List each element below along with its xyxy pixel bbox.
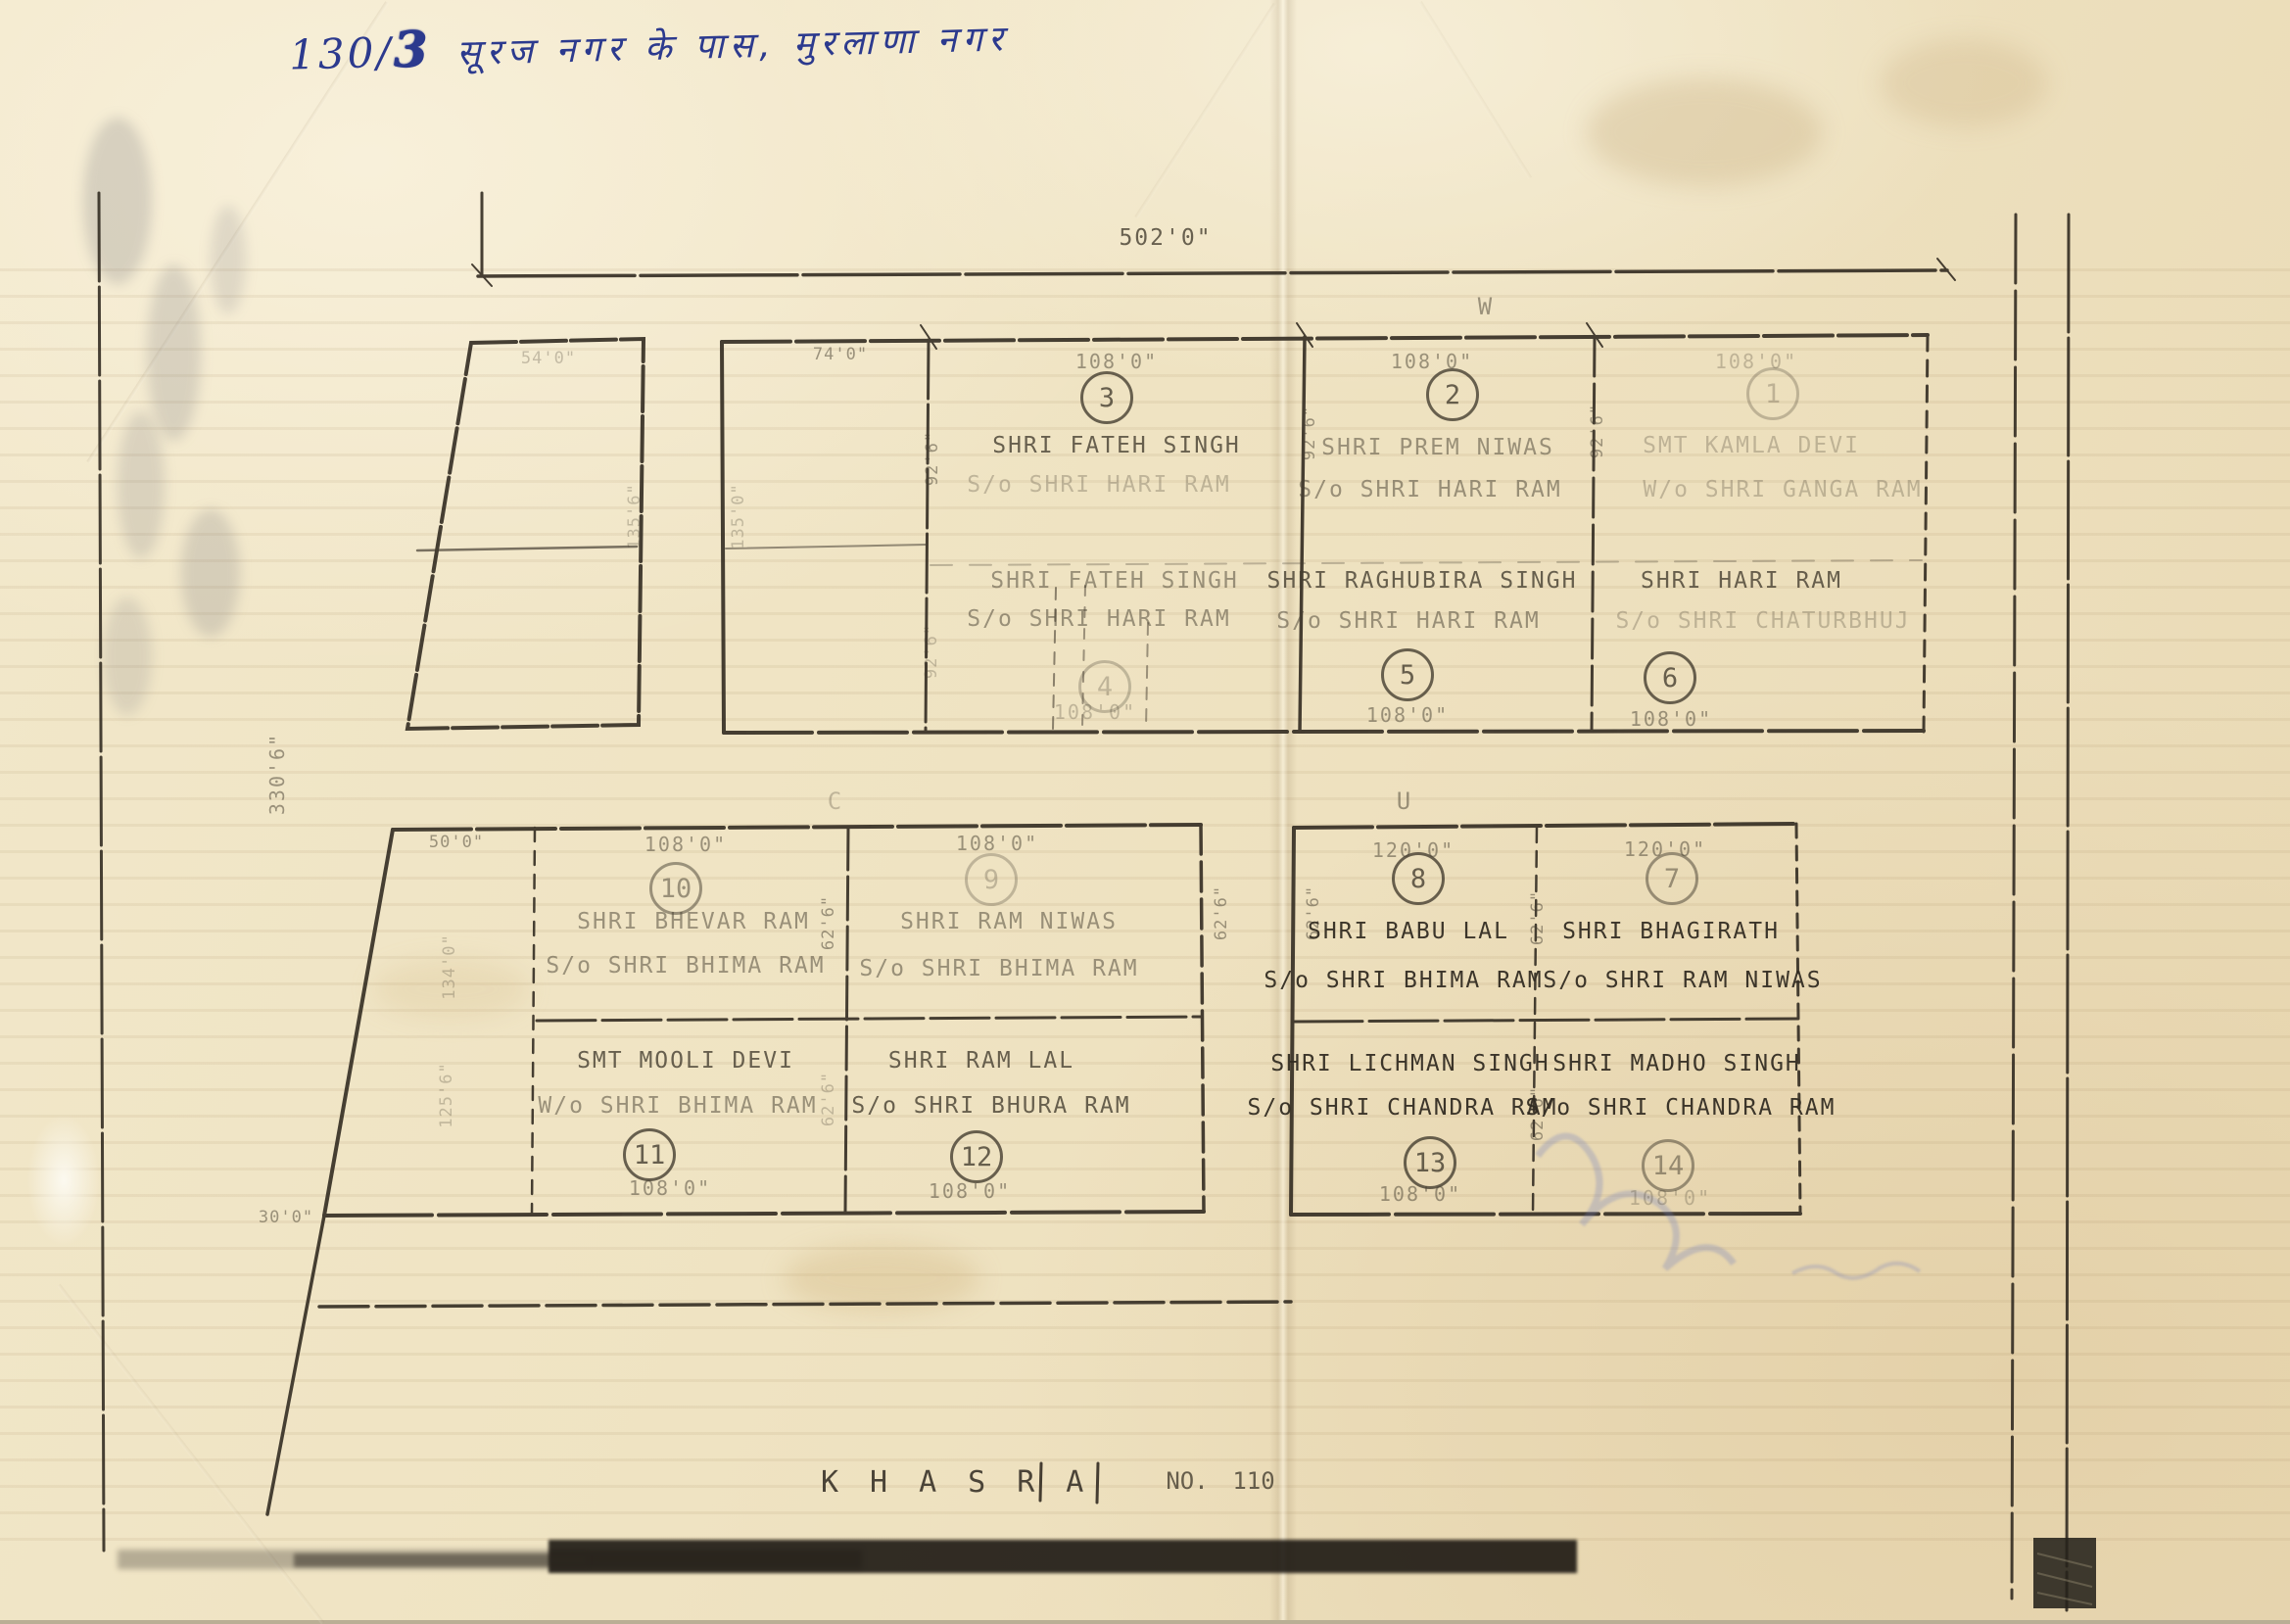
plot-12-dim: 108'0" [929,1179,1011,1203]
dim-depth-lower: 62'6" [1212,885,1231,940]
plot-10-name: SHRI BHEVAR RAM [577,909,810,934]
hatch-box [2033,1538,2096,1608]
plot-10-owner: S/o SHRI BHIMA RAM [546,953,825,979]
plot-9-name: SHRI RAM NIWAS [900,909,1118,934]
dim-left-height: 330'6" [265,733,289,815]
khasra-no-label: NO. [1166,1467,1208,1495]
plot-3-number: 3 [1080,371,1133,424]
plot-14-name: SHRI MADHO SINGH [1552,1051,1801,1076]
plot-3-dim: 108'0" [1075,350,1158,373]
plot-13-name: SHRI LICHMAN SINGH [1270,1051,1550,1076]
dim-depth-top: 92'6" [1588,404,1607,458]
khasra-number: 110 [1232,1467,1274,1495]
plot-9-number: 9 [965,853,1018,906]
dim-depth-lower: 62'6" [819,1072,838,1126]
plot-14-number: 14 [1642,1139,1694,1192]
dim-sliver-2: 125'6" [437,1062,456,1127]
dim-trapezoid-side: 135'6" [625,483,644,549]
plot-4-dim: 108'0" [1054,700,1136,724]
plot-9-owner: S/o SHRI BHIMA RAM [859,956,1138,981]
dim-depth-top: 92'6" [923,431,942,486]
plot-14-dim: 108'0" [1629,1186,1711,1210]
plot-1-owner: W/o SHRI GANGA RAM [1643,477,1922,502]
plot-5-dim: 108'0" [1366,703,1449,727]
plot-3-name: SHRI FATEH SINGH [992,433,1241,458]
plot-6-name: SHRI HARI RAM [1641,568,1842,594]
dim-lower-left-top: 50'0" [429,833,484,852]
plot-4-owner: S/o SHRI HARI RAM [967,606,1230,632]
plot-5-number: 5 [1381,648,1434,701]
plot-14-owner: S/o SHRI CHANDRA RAM [1526,1095,1837,1121]
dim-depth-lower: 62'6" [819,895,838,950]
plot-12-owner: S/o SHRI BHURA RAM [851,1093,1130,1119]
road-letter-c: C [828,788,841,815]
plot-10-dim: 108'0" [644,833,727,856]
plot-4-name: SHRI FATEH SINGH [990,568,1239,594]
road-letter-w: W [1478,293,1492,320]
plot-8-number: 8 [1392,852,1445,905]
dim-depth-top: 92'6" [922,624,941,679]
dim-col74-top: 74'0" [813,345,868,364]
dim-col74-side: 135'0" [729,483,748,549]
plot-9-dim: 108'0" [956,832,1038,855]
plot-11-dim: 108'0" [629,1176,711,1200]
plot-7-number: 7 [1646,852,1698,905]
ink-smudge-band [118,1540,1577,1573]
plot-11-owner: W/o SHRI BHIMA RAM [538,1093,817,1119]
plot-6-owner: S/o SHRI CHATURBHUJ [1615,608,1910,634]
plot-12-number: 12 [950,1130,1003,1183]
plot-6-dim: 108'0" [1630,707,1712,731]
plot-1-number: 1 [1746,367,1799,420]
dim-depth-top: 92'6" [1300,406,1319,460]
plot-5-name: SHRI RAGHUBIRA SINGH [1267,568,1578,594]
plot-13-number: 13 [1404,1136,1456,1189]
plot-12-name: SHRI RAM LAL [888,1048,1074,1074]
plot-13-dim: 108'0" [1379,1182,1461,1206]
ink-bleed-squiggle [1538,1136,1920,1278]
dim-bottom-left: 30'0" [259,1208,313,1227]
survey-number: 130/ [289,28,395,79]
plot-8-name: SHRI BABU LAL [1308,919,1509,944]
dim-depth-lower: 62'6" [1528,890,1548,945]
plot-6-number: 6 [1644,651,1696,704]
plot-1-name: SMT KAMLA DEVI [1643,433,1860,458]
plot-2-name: SHRI PREM NIWAS [1321,435,1554,460]
dim-top-width: 502'0" [1119,225,1212,251]
plot-11-number: 11 [623,1128,676,1181]
plot-11-name: SMT MOOLI DEVI [577,1048,794,1074]
road-letter-u: U [1397,788,1410,815]
plot-2-number: 2 [1426,368,1479,421]
plot-3-owner: S/o SHRI HARI RAM [967,472,1230,498]
plot-7-owner: S/o SHRI RAM NIWAS [1543,968,1822,993]
khasra-label: KHASRA [821,1465,1115,1500]
plot-10-number: 10 [649,862,702,915]
plot-5-owner: S/o SHRI HARI RAM [1276,608,1540,634]
plot-13-owner: S/o SHRI CHANDRA RAM [1248,1095,1558,1121]
survey-number-bold: 3 [393,20,428,78]
plot-2-owner: S/o SHRI HARI RAM [1298,477,1561,502]
plot-7-name: SHRI BHAGIRATH [1562,919,1780,944]
dim-sliver-1: 134'0" [440,933,459,999]
plot-8-owner: S/o SHRI BHIMA RAM [1264,968,1543,993]
dim-trapezoid-top: 54'0" [521,349,576,368]
